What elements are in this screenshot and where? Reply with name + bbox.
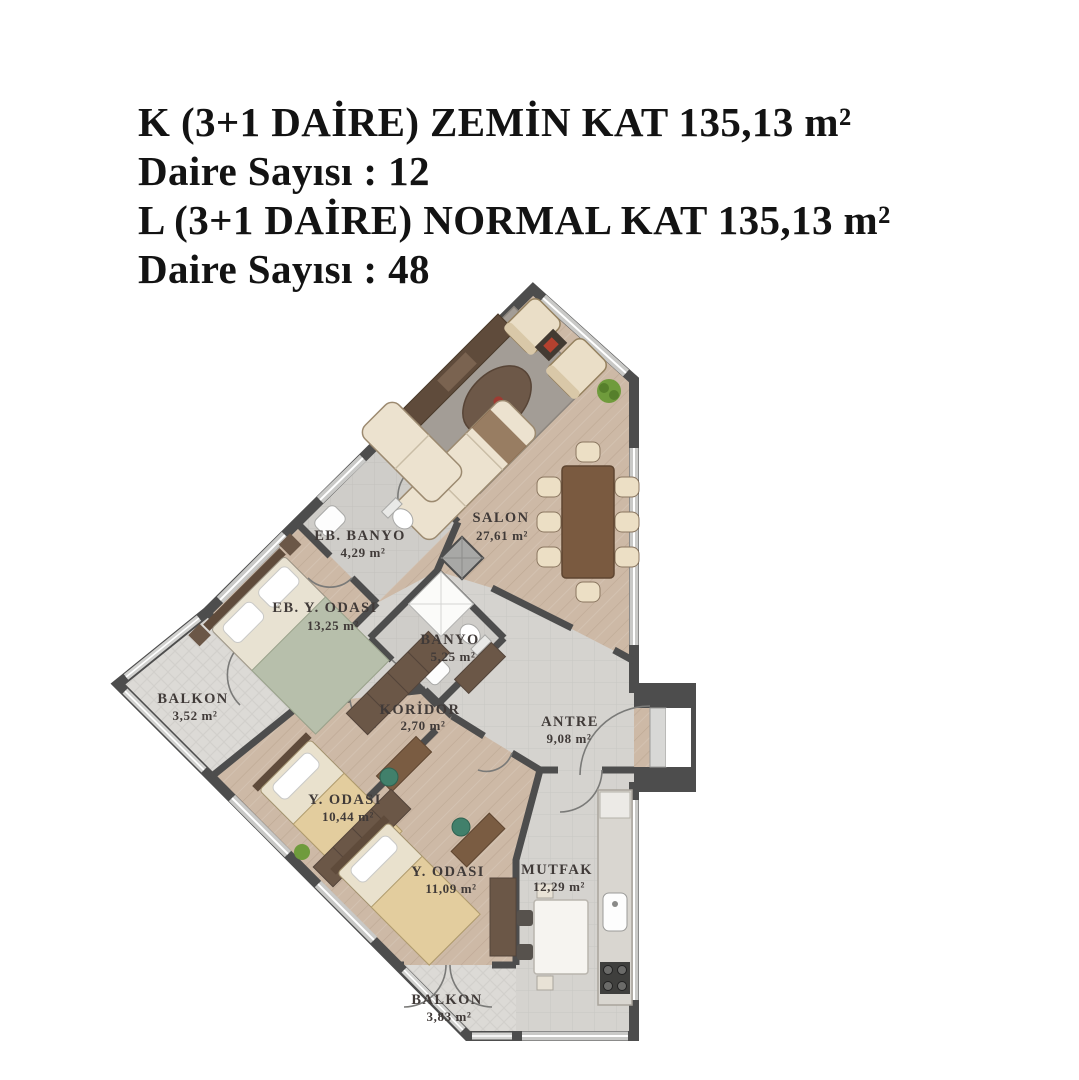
room-label-antre: ANTRE <box>541 714 599 730</box>
room-area-y-odasi-1: 10,44 m² <box>322 809 374 824</box>
room-area-mutfak: 12,29 m² <box>533 879 585 894</box>
room-label-balkon-left: BALKON <box>157 691 228 707</box>
plant-bedroom-2 <box>294 844 310 860</box>
title-line-3: L (3+1 DAİRE) NORMAL KAT 135,13 m² <box>138 196 891 245</box>
kitchen-sink <box>603 893 627 931</box>
wardrobe-3 <box>490 878 516 956</box>
title-line-1: K (3+1 DAİRE) ZEMİN KAT 135,13 m² <box>138 98 891 147</box>
room-label-koridor: KORİDOR <box>380 701 461 718</box>
room-area-y-odasi-2: 11,09 m² <box>425 881 476 896</box>
room-label-mutfak: MUTFAK <box>521 862 593 878</box>
title-line-4: Daire Sayısı : 48 <box>138 245 891 294</box>
entrance-door-frame <box>650 708 666 767</box>
entrance-wall-top <box>634 684 691 708</box>
desk-chair-3 <box>452 818 470 836</box>
room-area-salon: 27,61 m² <box>476 528 528 543</box>
room-area-eb-y-odasi: 13,25 m² <box>307 618 359 633</box>
room-area-antre: 9,08 m² <box>547 731 592 746</box>
desk-chair-2 <box>380 768 398 786</box>
room-area-balkon-bottom: 3,83 m² <box>427 1009 472 1024</box>
room-label-banyo: BANYO <box>420 632 479 648</box>
room-label-y-odasi-2: Y. ODASI <box>411 864 485 880</box>
room-label-salon: SALON <box>473 510 530 526</box>
room-area-balkon-left: 3,52 m² <box>173 708 218 723</box>
page: { "header": { "lines": [ "K (3+1 DAİRE) … <box>0 0 1079 1080</box>
title-line-2: Daire Sayısı : 12 <box>138 147 891 196</box>
room-label-balkon-bottom: BALKON <box>411 992 482 1008</box>
room-area-banyo: 5,25 m² <box>431 649 476 664</box>
room-area-koridor: 2,70 m² <box>401 718 446 733</box>
room-label-y-odasi-1: Y. ODASI <box>308 792 382 808</box>
entrance-recess <box>666 708 691 767</box>
fridge <box>600 792 630 818</box>
plant-salon <box>597 379 621 403</box>
entrance-wall-bottom <box>634 767 691 791</box>
room-label-eb-banyo: EB. BANYO <box>314 528 406 544</box>
kitchen-counter <box>598 790 632 1005</box>
title-block: K (3+1 DAİRE) ZEMİN KAT 135,13 m² Daire … <box>138 98 891 294</box>
room-label-eb-y-odasi: EB. Y. ODASI <box>272 600 377 616</box>
room-area-eb-banyo: 4,29 m² <box>341 545 386 560</box>
